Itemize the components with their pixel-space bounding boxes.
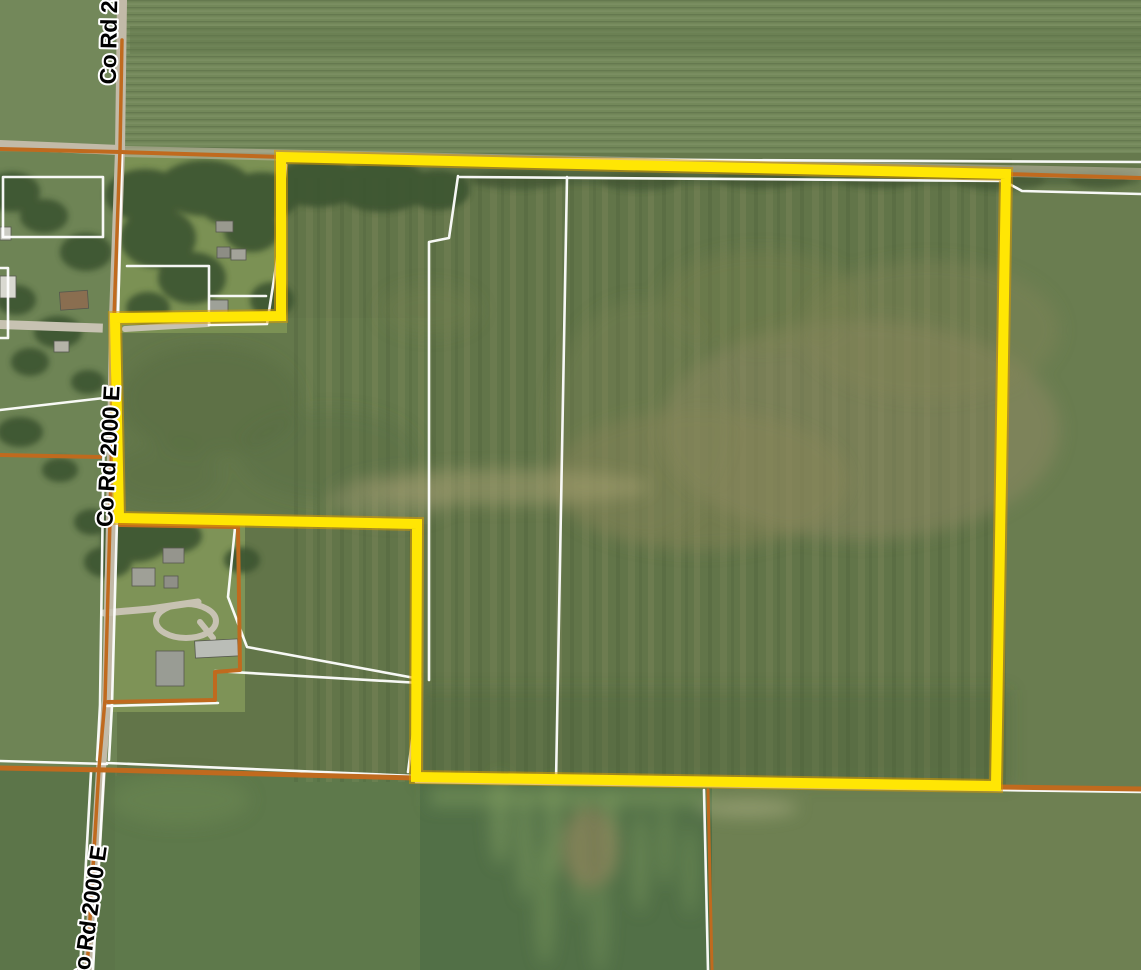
map-viewport[interactable]: Co Rd 2000 E Co Rd 2000 E Co Rd 2000 E — [0, 0, 1141, 970]
road-label-top: Co Rd 2000 E — [95, 0, 123, 85]
aerial-map-canvas[interactable]: Co Rd 2000 E Co Rd 2000 E Co Rd 2000 E — [0, 0, 1141, 970]
